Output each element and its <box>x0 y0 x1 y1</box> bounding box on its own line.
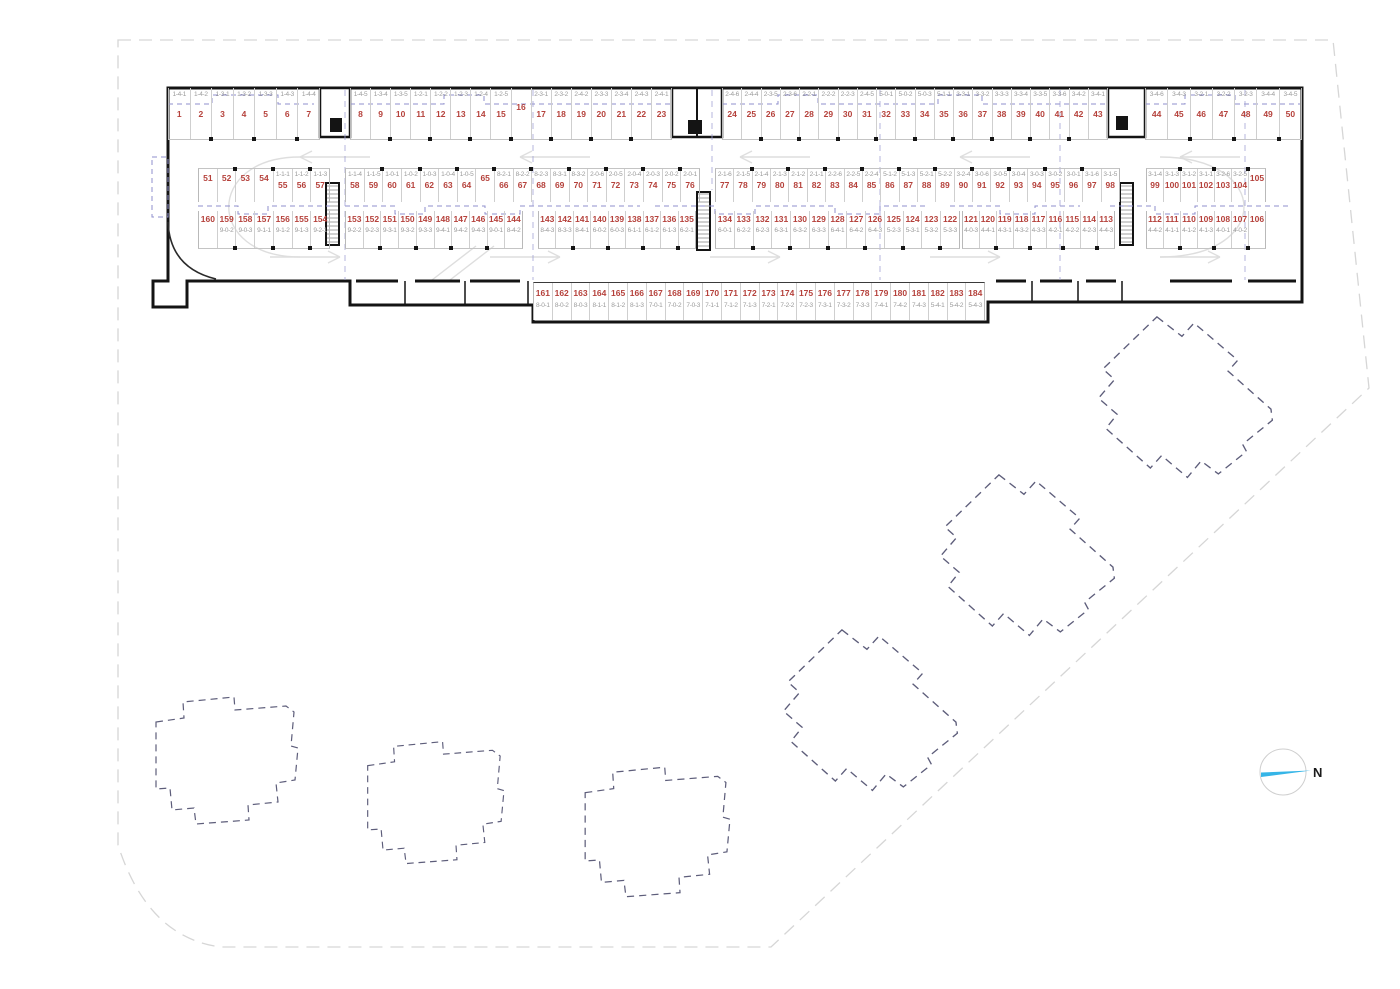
parking-space: 1519-3-1 <box>380 211 398 248</box>
parking-space: 1-3-510 <box>390 88 410 139</box>
space-number: 41 <box>1055 110 1064 119</box>
space-number: 94 <box>1032 181 1041 190</box>
unit-label: 6-4-1 <box>831 227 845 234</box>
space-number: 136 <box>662 215 676 224</box>
space-number: 69 <box>555 181 564 190</box>
parking-space: 3-4-143 <box>1088 88 1107 139</box>
parking-space: 2-0-176 <box>680 169 699 202</box>
unit-label: 3-1-3 <box>1165 171 1179 178</box>
unit-label: 8-4-3 <box>540 227 554 234</box>
parking-space: 2-3-627 <box>780 88 799 139</box>
parking-space: 1286-4-1 <box>828 211 847 248</box>
unit-label: 6-2-1 <box>680 227 694 234</box>
unit-label: 3-1-4 <box>1148 171 1162 178</box>
space-number: 56 <box>297 181 306 190</box>
space-number: 164 <box>592 289 606 298</box>
unit-label: 5-1-1 <box>937 91 951 98</box>
space-number: 93 <box>1014 181 1023 190</box>
space-number: 134 <box>718 215 732 224</box>
space-number: 111 <box>1165 215 1178 224</box>
space-number: 159 <box>219 215 233 224</box>
unit-label: 8-0-1 <box>536 302 550 309</box>
space-number: 21 <box>617 110 626 119</box>
unit-label: 4-1-1 <box>1165 227 1179 234</box>
parking-space: 1154-2-2 <box>1063 211 1080 248</box>
parking-space: 1618-0-1 <box>534 283 552 320</box>
parking-space: 1225-3-3 <box>940 211 959 248</box>
unit-label: 1-0-3 <box>422 171 436 178</box>
unit-label: 6-3-3 <box>812 227 826 234</box>
unit-label: 3-2-5 <box>1233 171 1247 178</box>
space-number: 58 <box>350 181 359 190</box>
space-number: 133 <box>737 215 751 224</box>
unit-label: 1-1-1 <box>276 171 290 178</box>
unit-label: 8-0-3 <box>574 302 588 309</box>
space-number: 34 <box>920 110 929 119</box>
unit-label: 6-1-2 <box>645 227 659 234</box>
unit-label: 7-4-1 <box>874 302 888 309</box>
space-number: 112 <box>1148 215 1162 224</box>
space-number: 35 <box>939 110 948 119</box>
space-number: 169 <box>686 289 700 298</box>
parking-space: 1428-3-3 <box>555 211 572 248</box>
unit-label: 8-4-2 <box>507 227 521 234</box>
space-number: 95 <box>1050 181 1059 190</box>
unit-label: 4-0-2 <box>1233 227 1247 234</box>
parking-space: 1579-1-1 <box>254 211 273 248</box>
unit-label: 6-2-2 <box>737 227 751 234</box>
space-number: 82 <box>812 181 821 190</box>
parking-space: 2-3-320 <box>591 88 611 139</box>
unit-label: 3-2-2 <box>1217 91 1231 98</box>
space-number: 30 <box>843 110 852 119</box>
parking-space: 1489-4-1 <box>434 211 452 248</box>
site-plan: 1-4-111-4-221-3-131-3-241-3-351-4-361-4-… <box>0 0 1400 989</box>
parking-space: 3-0-592 <box>990 169 1008 202</box>
space-number: 52 <box>222 174 231 183</box>
unit-label: 4-0-1 <box>1216 227 1230 234</box>
parking-space: 1144-2-3 <box>1080 211 1097 248</box>
space-number: 8 <box>358 110 363 119</box>
space-number: 68 <box>536 181 545 190</box>
space-number: 27 <box>785 110 794 119</box>
unit-label: 1-1-4 <box>348 171 362 178</box>
parking-space: 2-3-117 <box>531 88 551 139</box>
unit-label: 4-2-1 <box>1049 227 1063 234</box>
parking-space: 3-1-2101 <box>1180 169 1197 202</box>
unit-label: 3-4-3 <box>1172 91 1186 98</box>
parking-space: 3-2-490 <box>954 169 972 202</box>
parking-space: 3-2-5104 <box>1231 169 1248 202</box>
unit-label: 3-3-4 <box>1014 91 1028 98</box>
space-number: 6 <box>285 110 290 119</box>
space-number: 57 <box>315 181 324 190</box>
parking-space: 5-2-289 <box>935 169 953 202</box>
parking-space: 1697-0-3 <box>683 283 702 320</box>
space-number: 154 <box>313 215 327 224</box>
space-number: 66 <box>499 181 508 190</box>
space-number: 125 <box>887 215 901 224</box>
space-number: 55 <box>278 181 287 190</box>
parking-space: 1255-2-3 <box>884 211 903 248</box>
unit-label: 1-0-4 <box>441 171 455 178</box>
parking-space: 1-0-463 <box>438 169 457 202</box>
space-number: 72 <box>611 181 620 190</box>
parking-space: 2-0-374 <box>643 169 662 202</box>
parking-space: 3-4-242 <box>1069 88 1088 139</box>
unit-label: 1-4-3 <box>280 91 294 98</box>
unit-label: 7-3-2 <box>837 302 851 309</box>
space-number: 1 <box>177 110 182 119</box>
unit-label: 2-3-6 <box>783 91 797 98</box>
parking-space: 2-4-624 <box>723 88 741 139</box>
unit-label: 2-0-1 <box>683 171 697 178</box>
space-number: 5 <box>263 110 268 119</box>
space-number: 48 <box>1241 110 1250 119</box>
unit-label: 8-1-2 <box>611 302 625 309</box>
parking-space: 1-3-49 <box>370 88 390 139</box>
space-number: 122 <box>943 215 957 224</box>
unit-label: 2-2-3 <box>841 91 855 98</box>
parking-space: 3-2-146 <box>1190 88 1212 139</box>
parking-space: 106 <box>1248 211 1265 248</box>
parking-space: 2-3-421 <box>611 88 631 139</box>
space-number: 152 <box>365 215 379 224</box>
space-number: 139 <box>610 215 624 224</box>
space-number: 155 <box>294 215 308 224</box>
unit-label: 5-1-3 <box>901 171 915 178</box>
space-number: 13 <box>456 110 465 119</box>
parking-space: 1-0-160 <box>382 169 401 202</box>
parking-space: 3-2-6103 <box>1214 169 1231 202</box>
parking-space: 1104-1-2 <box>1180 211 1197 248</box>
parking-space: 1418-4-1 <box>573 211 590 248</box>
space-number: 90 <box>959 181 968 190</box>
unit-label: 1-3-4 <box>374 91 388 98</box>
parking-space: 3-4-449 <box>1256 88 1278 139</box>
space-number: 3 <box>220 110 225 119</box>
parking-space: 2-3-218 <box>551 88 571 139</box>
unit-label: 7-3-3 <box>856 302 870 309</box>
unit-label: 4-3-1 <box>998 227 1012 234</box>
parking-space: 1266-4-3 <box>865 211 884 248</box>
unit-label: 3-3-1 <box>956 91 970 98</box>
space-number: 140 <box>592 215 606 224</box>
parking-space: 1747-2-2 <box>777 283 796 320</box>
space-number: 45 <box>1174 110 1183 119</box>
parking-space: 1-3-35 <box>254 88 276 139</box>
unit-label: 1-2-1 <box>414 91 428 98</box>
parking-space: 53 <box>235 169 254 202</box>
unit-label: 7-2-2 <box>780 302 794 309</box>
unit-label: 7-1-1 <box>705 302 719 309</box>
unit-label: 7-0-3 <box>686 302 700 309</box>
parking-space: 3-1-697 <box>1082 169 1100 202</box>
space-number: 16 <box>516 103 525 112</box>
parking-segment: 1124-4-21114-1-11104-1-21094-1-31084-0-1… <box>1146 211 1266 249</box>
space-number: 153 <box>347 215 361 224</box>
unit-label: 8-3-2 <box>571 171 585 178</box>
space-number: 123 <box>924 215 938 224</box>
space-number: 40 <box>1035 110 1044 119</box>
space-number: 114 <box>1082 215 1096 224</box>
parking-space: 1276-4-2 <box>846 211 865 248</box>
space-number: 91 <box>977 181 986 190</box>
unit-label: 1-3-2 <box>237 91 251 98</box>
space-number: 183 <box>949 289 963 298</box>
unit-label: 9-3-3 <box>418 227 432 234</box>
unit-label: 2-1-6 <box>718 171 732 178</box>
parking-space: 2-2-229 <box>818 88 837 139</box>
unit-label: 9-1-1 <box>257 227 271 234</box>
space-number: 63 <box>443 181 452 190</box>
parking-space: 1386-1-1 <box>625 211 642 248</box>
space-number: 166 <box>630 289 644 298</box>
space-number: 115 <box>1065 215 1079 224</box>
space-number: 22 <box>637 110 646 119</box>
parking-space: 1797-4-1 <box>871 283 890 320</box>
space-number: 157 <box>257 215 271 224</box>
space-number: 119 <box>998 215 1012 224</box>
space-number: 145 <box>489 215 503 224</box>
parking-space: 1787-3-3 <box>853 283 872 320</box>
unit-label: 3-2-1 <box>1194 91 1208 98</box>
space-number: 64 <box>462 181 471 190</box>
unit-label: 3-0-4 <box>1012 171 1026 178</box>
unit-label: 1-2-3 <box>454 91 468 98</box>
unit-label: 1-3-1 <box>216 91 230 98</box>
parking-space: 1-1-559 <box>364 169 383 202</box>
parking-space: 1845-4-3 <box>965 283 984 320</box>
parking-space: 2-4-531 <box>857 88 876 139</box>
building-footprint <box>368 742 504 864</box>
parking-space: 3-3-439 <box>1011 88 1030 139</box>
parking-space: 2-4-219 <box>571 88 591 139</box>
space-number: 163 <box>573 289 587 298</box>
unit-label: 3-0-2 <box>1048 171 1062 178</box>
parking-space: 1326-2-3 <box>753 211 772 248</box>
parking-segment: 3-1-4993-1-31003-1-21013-1-11023-2-61033… <box>1146 168 1266 202</box>
unit-label: 7-2-3 <box>799 302 813 309</box>
parking-space: 8-2-368 <box>531 169 550 202</box>
parking-space: 3-1-499 <box>1147 169 1163 202</box>
unit-label: 9-4-1 <box>436 227 450 234</box>
space-number: 84 <box>848 181 857 190</box>
parking-space: 1084-0-1 <box>1214 211 1231 248</box>
space-number: 151 <box>383 215 397 224</box>
space-number: 23 <box>657 110 666 119</box>
parking-space: 1-0-362 <box>420 169 439 202</box>
space-number: 107 <box>1233 215 1247 224</box>
parking-space: 1-4-58 <box>351 88 370 139</box>
parking-space: 1668-1-3 <box>627 283 646 320</box>
space-number: 17 <box>536 110 545 119</box>
space-number: 26 <box>766 110 775 119</box>
space-number: 121 <box>964 215 978 224</box>
building-footprint <box>760 610 973 823</box>
space-number: 80 <box>775 181 784 190</box>
unit-label: 8-2-2 <box>516 171 530 178</box>
parking-space: 1-0-564 <box>457 169 476 202</box>
space-number: 104 <box>1233 181 1247 190</box>
parking-space: 3-0-394 <box>1027 169 1045 202</box>
space-number: 12 <box>436 110 445 119</box>
parking-space: 1-4-22 <box>190 88 212 139</box>
unit-label: 5-3-3 <box>943 227 957 234</box>
unit-label: 5-2-3 <box>887 227 901 234</box>
unit-label: 2-1-4 <box>755 171 769 178</box>
parking-space: 1366-1-3 <box>660 211 677 248</box>
space-number: 88 <box>922 181 931 190</box>
space-number: 117 <box>1032 215 1046 224</box>
parking-space: 3-3-540 <box>1030 88 1049 139</box>
unit-label: 2-2-4 <box>865 171 879 178</box>
parking-segment: 1-1-4581-1-5591-0-1601-0-2611-0-3621-0-4… <box>345 168 700 202</box>
parking-space: 1-2-212 <box>430 88 450 139</box>
unit-label: 2-0-3 <box>646 171 660 178</box>
parking-space: 1539-2-2 <box>346 211 363 248</box>
space-number: 50 <box>1286 110 1295 119</box>
parking-space: 1214-0-3 <box>963 211 979 248</box>
space-number: 9 <box>378 110 383 119</box>
unit-label: 9-0-1 <box>489 227 503 234</box>
parking-space: 1628-0-2 <box>552 283 571 320</box>
space-number: 130 <box>793 215 807 224</box>
unit-label: 7-0-2 <box>668 302 682 309</box>
building-footprint <box>1075 297 1288 510</box>
building-footprint <box>917 455 1130 668</box>
parking-space: 3-1-1102 <box>1197 169 1214 202</box>
parking-space: 1438-4-3 <box>539 211 555 248</box>
space-number: 98 <box>1105 181 1114 190</box>
parking-segment: 2-1-6772-1-5782-1-4792-1-3802-1-2812-1-1… <box>715 168 1120 202</box>
unit-label: 8-2-3 <box>534 171 548 178</box>
space-number: 176 <box>818 289 832 298</box>
space-number: 24 <box>727 110 736 119</box>
parking-space: 3-3-338 <box>992 88 1011 139</box>
space-number: 31 <box>862 110 871 119</box>
space-number: 127 <box>849 215 863 224</box>
parking-space: 1757-2-3 <box>796 283 815 320</box>
parking-space: 3-1-3100 <box>1163 169 1180 202</box>
unit-label: 2-1-1 <box>810 171 824 178</box>
parking-space: 1-1-458 <box>346 169 364 202</box>
space-number: 7 <box>306 110 311 119</box>
north-needle <box>1261 771 1311 778</box>
space-number: 87 <box>904 181 913 190</box>
parking-segment: 1214-0-31204-4-11194-3-11184-3-21174-3-3… <box>962 211 1115 249</box>
space-number: 178 <box>855 289 869 298</box>
unit-label: 3-4-6 <box>1150 91 1164 98</box>
parking-space: 1717-1-2 <box>721 283 740 320</box>
unit-label: 9-2-1 <box>313 227 327 234</box>
space-number: 18 <box>556 110 565 119</box>
parking-space: 2-4-425 <box>741 88 760 139</box>
unit-label: 2-4-2 <box>574 91 588 98</box>
parking-space: 1134-4-3 <box>1097 211 1114 248</box>
unit-label: 1-0-1 <box>385 171 399 178</box>
parking-space: 1-2-414 <box>470 88 490 139</box>
unit-label: 2-4-3 <box>635 91 649 98</box>
parking-space: 2-1-281 <box>788 169 806 202</box>
unit-label: 2-2-5 <box>846 171 860 178</box>
unit-label: 2-4-5 <box>860 91 874 98</box>
space-number: 158 <box>238 215 252 224</box>
unit-label: 6-4-2 <box>849 227 863 234</box>
parking-space: 2-0-572 <box>606 169 625 202</box>
space-number: 36 <box>958 110 967 119</box>
space-number: 116 <box>1049 215 1063 224</box>
unit-label: 9-4-2 <box>454 227 468 234</box>
space-number: 77 <box>720 181 729 190</box>
unit-label: 2-2-1 <box>802 91 816 98</box>
parking-space: 2-2-683 <box>825 169 843 202</box>
unit-label: 5-2-1 <box>920 171 934 178</box>
parking-space: 1406-0-2 <box>590 211 607 248</box>
unit-label: 6-0-3 <box>610 227 624 234</box>
unit-label: 3-0-6 <box>975 171 989 178</box>
space-number: 171 <box>724 289 738 298</box>
unit-label: 8-3-1 <box>553 171 567 178</box>
parking-space: 1509-3-2 <box>398 211 416 248</box>
parking-space: 3-0-691 <box>972 169 990 202</box>
parking-space: 1376-1-2 <box>643 211 660 248</box>
space-number: 47 <box>1219 110 1228 119</box>
space-number: 150 <box>400 215 414 224</box>
unit-label: 8-4-1 <box>575 227 589 234</box>
space-number: 60 <box>387 181 396 190</box>
unit-label: 9-4-3 <box>471 227 485 234</box>
space-number: 32 <box>881 110 890 119</box>
parking-space: 1687-0-2 <box>665 283 684 320</box>
unit-label: 4-4-1 <box>981 227 995 234</box>
space-number: 81 <box>793 181 802 190</box>
space-number: 10 <box>396 110 405 119</box>
unit-label: 3-0-3 <box>1030 171 1044 178</box>
parking-space: 8-2-267 <box>513 169 532 202</box>
parking-space: 3-2-247 <box>1212 88 1234 139</box>
unit-label: 5-1-2 <box>883 171 897 178</box>
space-number: 54 <box>259 174 268 183</box>
space-number: 180 <box>893 289 907 298</box>
parking-space: 5-1-135 <box>934 88 953 139</box>
parking-space: 1-4-47 <box>297 88 319 139</box>
parking-space: 5-2-188 <box>917 169 935 202</box>
parking-space: 3-0-295 <box>1045 169 1063 202</box>
unit-label: 5-4-2 <box>950 302 964 309</box>
unit-label: 4-1-2 <box>1182 227 1196 234</box>
parking-space: 1094-1-3 <box>1197 211 1214 248</box>
space-number: 148 <box>436 215 450 224</box>
parking-segment: 1438-4-31428-3-31418-4-11406-0-21396-0-3… <box>538 211 696 249</box>
parking-space: 1569-1-2 <box>273 211 292 248</box>
parking-space: 3-1-598 <box>1101 169 1119 202</box>
space-number: 79 <box>757 181 766 190</box>
parking-space: 1599-0-2 <box>217 211 236 248</box>
space-number: 138 <box>627 215 641 224</box>
unit-label: 3-3-3 <box>995 91 1009 98</box>
parking-space: 1235-3-2 <box>921 211 940 248</box>
parking-space: 1737-2-1 <box>759 283 778 320</box>
unit-label: 3-3-5 <box>1033 91 1047 98</box>
space-number: 15 <box>496 110 505 119</box>
unit-label: 4-4-3 <box>1099 227 1113 234</box>
parking-space: 1204-4-1 <box>979 211 996 248</box>
space-number: 100 <box>1165 181 1179 190</box>
unit-label: 3-3-6 <box>1053 91 1067 98</box>
space-number: 113 <box>1099 215 1113 224</box>
parking-space: 52 <box>217 169 236 202</box>
